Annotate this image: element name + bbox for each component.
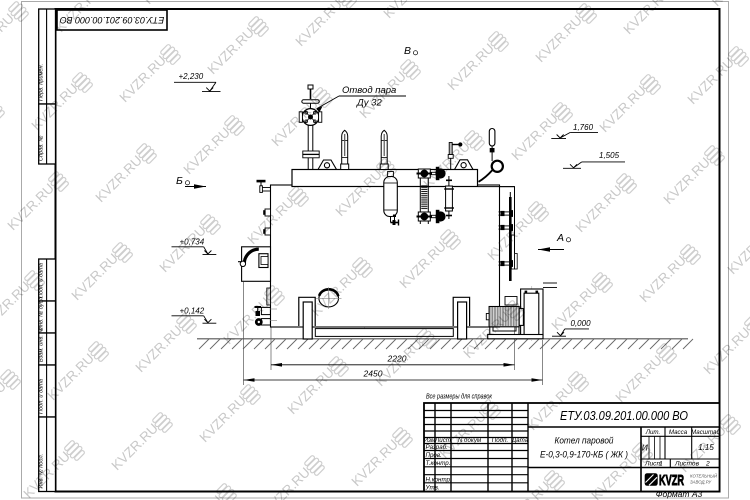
svg-text:Дата: Дата [511, 437, 529, 444]
svg-text:Справ. №: Справ. № [39, 136, 45, 161]
svg-text:Подп.: Подп. [492, 437, 508, 444]
svg-text:Лит.: Лит. [645, 429, 661, 436]
svg-text:В: В [404, 45, 411, 57]
svg-text:1,505: 1,505 [599, 151, 620, 160]
svg-text:0,000: 0,000 [571, 319, 592, 328]
svg-text:КОТЕЛЬНЫЙ: КОТЕЛЬНЫЙ [690, 474, 718, 479]
svg-text:Котел паровой: Котел паровой [555, 436, 614, 446]
svg-text:Б: Б [176, 175, 183, 187]
svg-text:Взам. инв. №: Взам. инв. № [39, 327, 45, 362]
svg-text:А: А [556, 232, 564, 244]
svg-text:Утв.: Утв. [425, 485, 440, 492]
svg-text:+2,230: +2,230 [179, 72, 204, 81]
svg-text:Е-0,3-0,9-170-КБ ( ЖК ): Е-0,3-0,9-170-КБ ( ЖК ) [540, 450, 628, 460]
svg-text:Масса: Масса [669, 429, 688, 436]
svg-text:1: 1 [659, 460, 663, 467]
svg-text:ЗАВОД.РУ: ЗАВОД.РУ [690, 480, 712, 485]
svg-text:Подп. и дата: Подп. и дата [39, 379, 45, 414]
svg-text:1,760: 1,760 [573, 123, 594, 132]
svg-text:Перв. примен.: Перв. примен. [39, 64, 45, 101]
svg-text:Формат А3: Формат А3 [656, 489, 703, 499]
svg-text:ЕТУ.03.09.201.00.000 ВО: ЕТУ.03.09.201.00.000 ВО [560, 408, 688, 423]
svg-text:KVZR: KVZR [659, 472, 684, 489]
svg-text:Н.контр.: Н.контр. [426, 476, 452, 483]
svg-text:Все размеры для справок: Все размеры для справок [426, 392, 492, 401]
svg-text:Инв. № дубл.: Инв. № дубл. [39, 296, 45, 330]
svg-text:2: 2 [705, 460, 710, 467]
